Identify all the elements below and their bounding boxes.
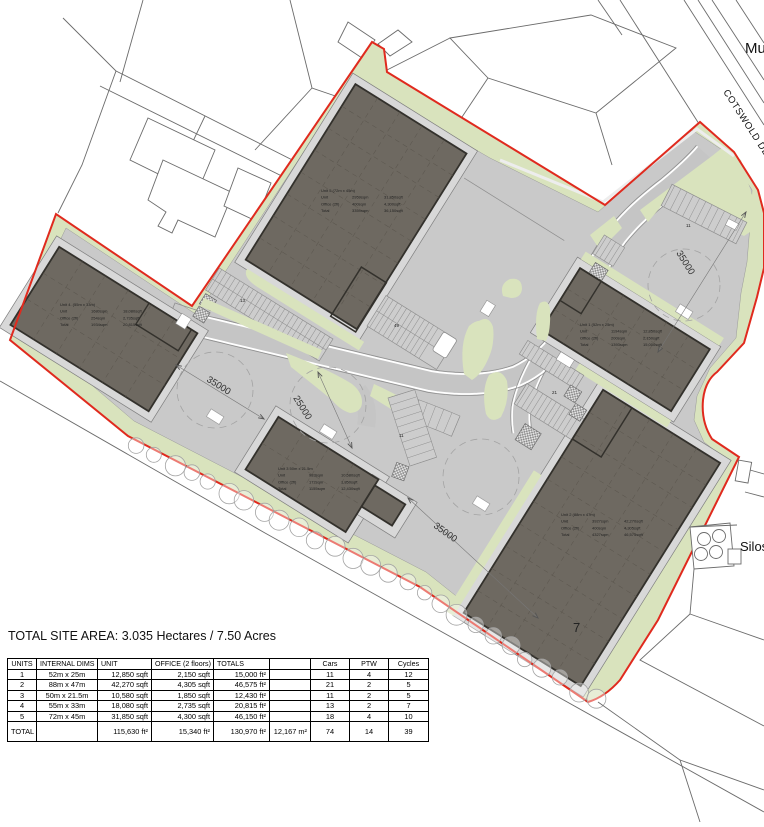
svg-text:Office (2fl): Office (2fl) <box>321 201 340 206</box>
svg-text:4327sqm: 4327sqm <box>592 532 609 537</box>
svg-text:Total: Total <box>60 322 69 327</box>
svg-text:254sqm: 254sqm <box>91 315 106 320</box>
svg-text:Total: Total <box>561 532 570 537</box>
svg-text:2,150sqft: 2,150sqft <box>643 335 660 340</box>
svg-text:400sqm: 400sqm <box>592 525 607 530</box>
svg-text:Total: Total <box>321 208 330 213</box>
svg-text:Unit 3 50m x 21.5m: Unit 3 50m x 21.5m <box>278 466 313 471</box>
svg-text:3927sqm: 3927sqm <box>592 519 609 524</box>
svg-text:36,150sqft: 36,150sqft <box>384 208 404 213</box>
svg-text:Unit 1 (52m x 25m): Unit 1 (52m x 25m) <box>580 322 615 327</box>
svg-text:Unit: Unit <box>321 195 329 200</box>
svg-text:11: 11 <box>686 223 691 228</box>
svg-text:Office (2fl): Office (2fl) <box>278 479 297 484</box>
svg-text:46,575sqft: 46,575sqft <box>624 532 644 537</box>
svg-text:1934sqm: 1934sqm <box>91 322 108 327</box>
svg-text:2,735sqft: 2,735sqft <box>123 315 140 320</box>
svg-text:42,270sqft: 42,270sqft <box>624 519 644 524</box>
svg-text:4,305sqft: 4,305sqft <box>624 525 641 530</box>
svg-text:Office (2fl): Office (2fl) <box>561 525 580 530</box>
svg-text:12,850sqft: 12,850sqft <box>643 329 663 334</box>
svg-text:21: 21 <box>552 390 558 395</box>
svg-text:400sqm: 400sqm <box>352 201 367 206</box>
svg-text:11: 11 <box>399 433 404 438</box>
svg-text:12,430sqft: 12,430sqft <box>341 486 361 491</box>
svg-text:1393sqm: 1393sqm <box>611 342 628 347</box>
svg-text:31,850sqft: 31,850sqft <box>384 195 404 200</box>
svg-text:1680sqm: 1680sqm <box>91 309 108 314</box>
svg-text:49: 49 <box>394 323 400 328</box>
svg-text:Office (2fl): Office (2fl) <box>580 335 599 340</box>
svg-text:Office (2fl): Office (2fl) <box>60 315 79 320</box>
svg-text:200sqm: 200sqm <box>611 335 626 340</box>
svg-text:4,300sqft: 4,300sqft <box>384 201 401 206</box>
svg-text:3359sqm: 3359sqm <box>352 208 369 213</box>
svg-text:13: 13 <box>240 298 246 303</box>
svg-text:10,580sqft: 10,580sqft <box>341 473 361 478</box>
svg-text:15,000sqft: 15,000sqft <box>643 342 663 347</box>
svg-text:1194sqm: 1194sqm <box>611 329 628 334</box>
svg-text:Unit 2 (88m x 47m): Unit 2 (88m x 47m) <box>561 512 596 517</box>
svg-text:1155sqm: 1155sqm <box>309 486 326 491</box>
svg-text:172sqm: 172sqm <box>309 479 324 484</box>
svg-text:Unit 5 (72m x 45m): Unit 5 (72m x 45m) <box>321 188 356 193</box>
svg-text:Total: Total <box>278 486 287 491</box>
svg-text:1,850sqft: 1,850sqft <box>341 479 358 484</box>
svg-text:983sqm: 983sqm <box>309 473 324 478</box>
svg-text:Silos: Silos <box>740 539 764 554</box>
svg-text:7: 7 <box>573 620 580 635</box>
svg-text:Unit: Unit <box>278 473 286 478</box>
svg-text:20,815sqft: 20,815sqft <box>123 322 143 327</box>
svg-text:Unit: Unit <box>561 519 569 524</box>
svg-text:Total: Total <box>580 342 589 347</box>
svg-text:Unit: Unit <box>580 329 588 334</box>
svg-text:2959sqm: 2959sqm <box>352 195 369 200</box>
svg-text:Unit 4. (55m x 33m): Unit 4. (55m x 33m) <box>60 302 96 307</box>
svg-text:Unit: Unit <box>60 309 68 314</box>
svg-text:Mu: Mu <box>745 40 764 57</box>
svg-text:18,080sqft: 18,080sqft <box>123 309 143 314</box>
